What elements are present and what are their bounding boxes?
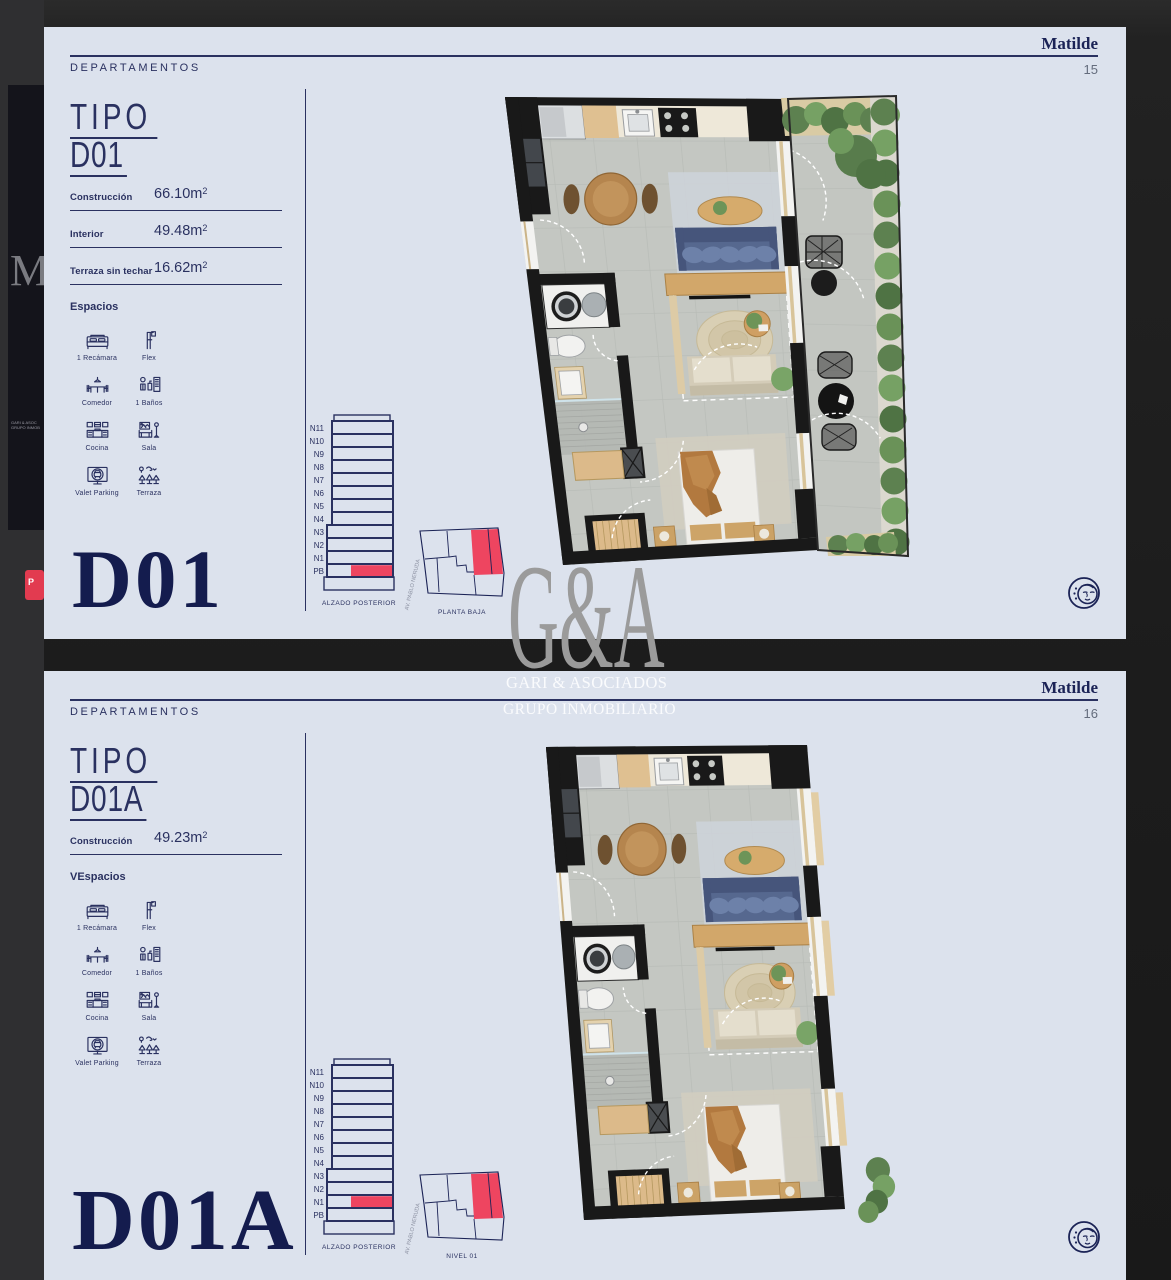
svg-text:PB: PB [313, 567, 324, 576]
svg-text:N7: N7 [314, 1120, 325, 1129]
svg-text:N6: N6 [314, 1133, 325, 1142]
svg-text:N3: N3 [314, 528, 325, 537]
svg-text:N3: N3 [314, 1172, 325, 1181]
svg-text:N9: N9 [314, 450, 325, 459]
svg-text:N4: N4 [314, 515, 325, 524]
svg-text:N7: N7 [314, 476, 325, 485]
svg-text:AV. PABLO NERUDA: AV. PABLO NERUDA [404, 1202, 422, 1255]
svg-text:N9: N9 [314, 1094, 325, 1103]
svg-text:ALZADO POSTERIOR: ALZADO POSTERIOR [322, 1244, 396, 1251]
svg-text:ALZADO POSTERIOR: ALZADO POSTERIOR [322, 600, 396, 607]
svg-text:N2: N2 [314, 1185, 325, 1194]
svg-text:N1: N1 [314, 554, 325, 563]
svg-text:N5: N5 [314, 502, 325, 511]
svg-text:N6: N6 [314, 489, 325, 498]
svg-text:N10: N10 [309, 437, 324, 446]
svg-text:N1: N1 [314, 1198, 325, 1207]
svg-text:N4: N4 [314, 1159, 325, 1168]
svg-text:N5: N5 [314, 1146, 325, 1155]
svg-text:N8: N8 [314, 1107, 325, 1116]
svg-text:N10: N10 [309, 1081, 324, 1090]
svg-text:AV. PABLO NERUDA: AV. PABLO NERUDA [404, 558, 422, 611]
svg-text:PLANTA BAJA: PLANTA BAJA [438, 609, 486, 616]
svg-text:PB: PB [313, 1211, 324, 1220]
svg-text:N11: N11 [310, 1068, 325, 1077]
svg-text:N11: N11 [310, 424, 325, 433]
svg-text:NIVEL 01: NIVEL 01 [446, 1253, 478, 1260]
svg-text:N8: N8 [314, 463, 325, 472]
svg-text:N2: N2 [314, 541, 325, 550]
